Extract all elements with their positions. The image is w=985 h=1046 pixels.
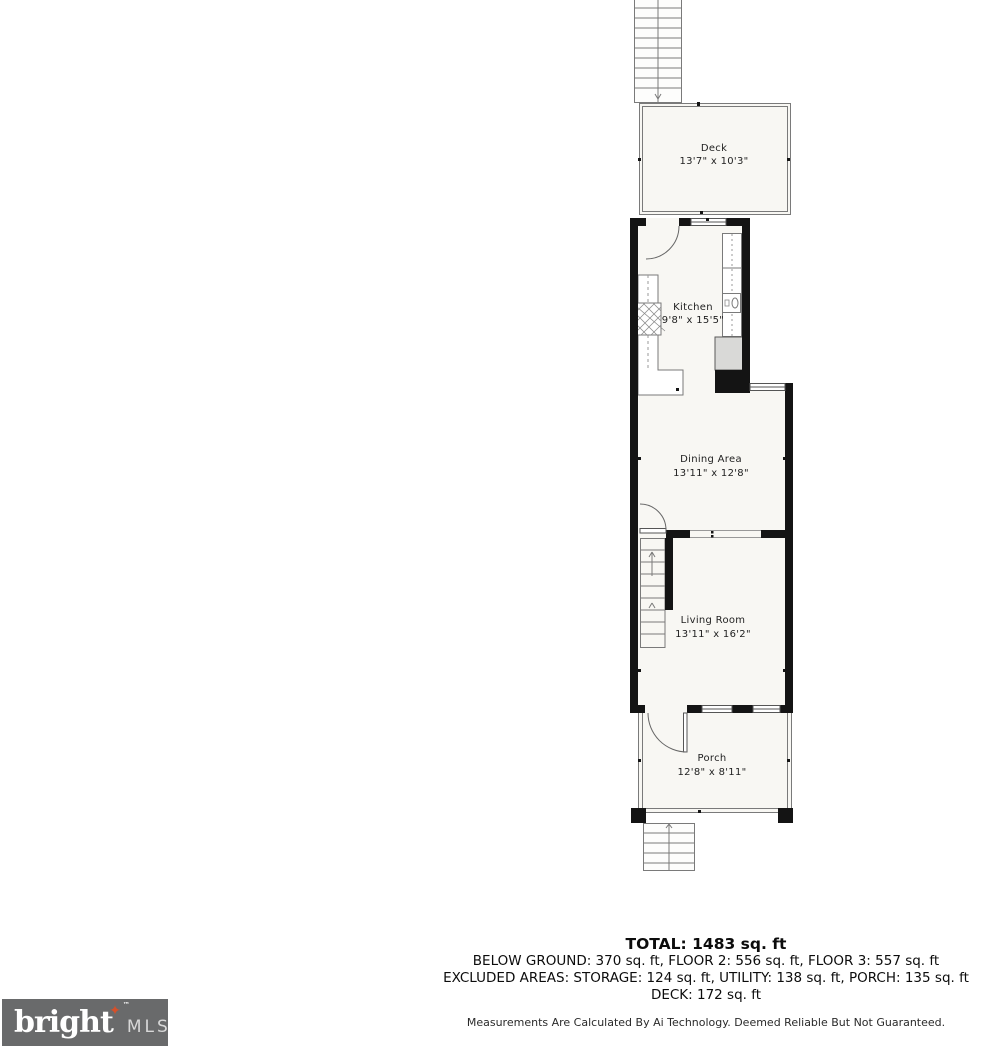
excluded-areas: EXCLUDED AREAS: STORAGE: 124 sq. ft, UTI… xyxy=(420,970,985,987)
wall-left xyxy=(630,218,638,713)
total-area: TOTAL: 1483 sq. ft xyxy=(420,936,985,953)
refrigerator xyxy=(715,337,743,370)
dining-dims: 13'11" x 12'8" xyxy=(673,468,749,479)
dining-label: Dining Area xyxy=(680,454,742,465)
kitchen-dims: 9'8" x 15'5" xyxy=(662,315,724,326)
deck-dims: 13'7" x 10'3" xyxy=(679,156,748,167)
bright-mls-logo: bright✦™ MLS xyxy=(2,999,168,1046)
dining-door-leaf xyxy=(640,529,666,534)
wall-stair xyxy=(665,538,673,610)
living-label: Living Room xyxy=(681,615,746,626)
porch-dims: 12'8" x 8'11" xyxy=(677,767,746,778)
porch-label: Porch xyxy=(697,753,726,764)
dining-window xyxy=(750,384,785,391)
floor-plan-page: Deck 13'7" x 10'3" Kitchen 9'8" x 15'5" … xyxy=(0,0,985,1046)
disclaimer: Measurements Are Calculated By Ai Techno… xyxy=(420,1016,985,1029)
wall-kitchen-right xyxy=(742,226,750,374)
room-fills xyxy=(630,0,793,871)
porch-post-left xyxy=(631,808,646,823)
deck-label: Deck xyxy=(701,143,727,154)
area-summary: TOTAL: 1483 sq. ft BELOW GROUND: 370 sq.… xyxy=(420,936,985,1029)
star-icon: ✦ xyxy=(109,1004,120,1018)
kitchen-label: Kitchen xyxy=(673,302,713,313)
wall-right xyxy=(785,383,793,713)
floor-areas: BELOW GROUND: 370 sq. ft, FLOOR 2: 556 s… xyxy=(420,953,985,970)
logo-mls-text: MLS xyxy=(127,1017,171,1037)
living-dims: 13'11" x 16'2" xyxy=(675,629,751,640)
logo-brand-text: bright✦™ xyxy=(14,1008,113,1038)
trademark-symbol: ™ xyxy=(123,1002,129,1009)
floor-plan-drawing: Deck 13'7" x 10'3" Kitchen 9'8" x 15'5" … xyxy=(0,0,985,1046)
porch-post-right xyxy=(778,808,793,823)
living-window-left xyxy=(702,706,732,713)
deck-area: DECK: 172 sq. ft xyxy=(420,987,985,1004)
living-window-right xyxy=(753,706,780,713)
front-door-leaf xyxy=(684,713,688,752)
